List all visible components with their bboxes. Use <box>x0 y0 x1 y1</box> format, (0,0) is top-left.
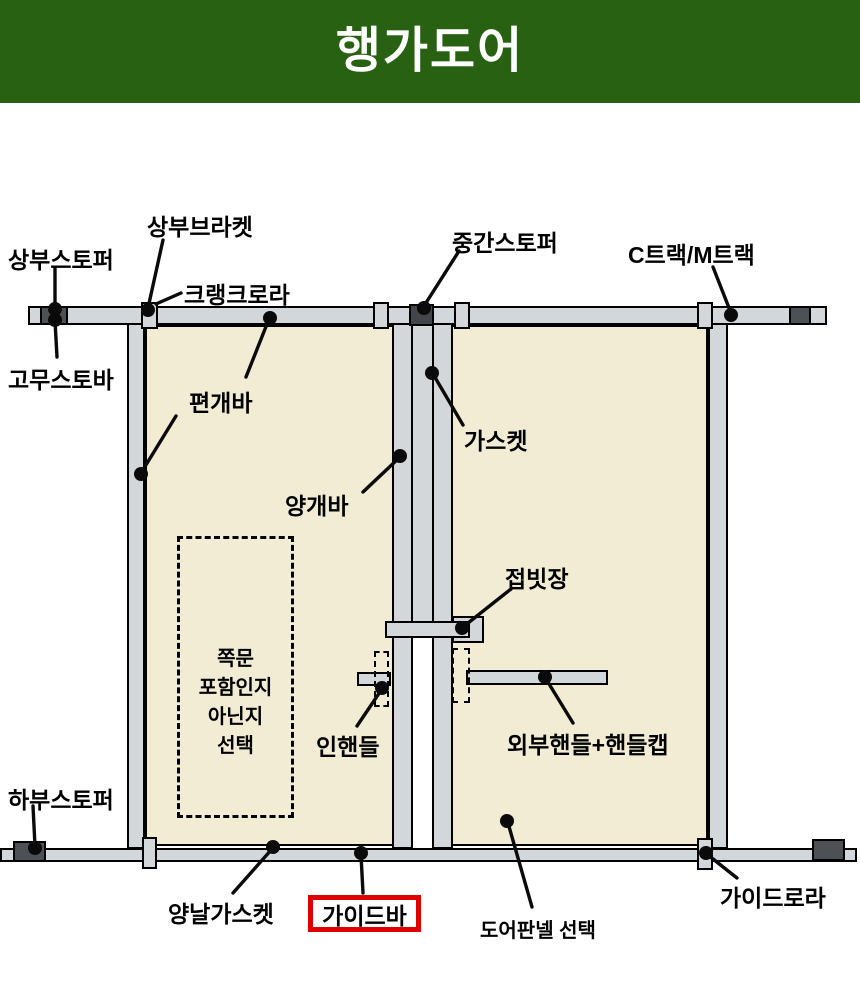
label-middle-stopper: 중간스토퍼 <box>452 224 558 258</box>
door-panel-right <box>450 325 708 846</box>
label-outer-handle: 외부핸들+핸들캡 <box>507 726 669 760</box>
label-guide-bar: 가이드바 <box>322 897 407 931</box>
page-title: 행가도어 <box>0 0 860 103</box>
leader-top-bracket <box>148 240 163 308</box>
label-double-edge-gasket: 양날가스켓 <box>168 895 274 929</box>
bottom-guide-bracket-left <box>142 837 157 869</box>
side-door-note-line: 포함인지 <box>177 674 294 703</box>
label-bottom-stopper: 하부스토퍼 <box>8 781 114 815</box>
top-left-stopper-block <box>40 306 68 325</box>
label-top-bracket: 상부브라켓 <box>147 208 253 242</box>
center-right-frame-bar <box>432 323 453 849</box>
left-frame-bar <box>127 323 145 849</box>
inner-handle-dashed-outline <box>374 651 389 707</box>
label-crank-roller: 크랭크로라 <box>184 276 290 310</box>
folding-latch-bar <box>385 621 470 638</box>
label-guide-roller: 가이드로라 <box>720 879 826 913</box>
label-folding-latch: 접빗장 <box>505 560 568 594</box>
bottom-right-stopper-block <box>812 839 845 861</box>
guide-roller-block <box>697 838 713 870</box>
side-door-note-line: 선택 <box>177 732 294 761</box>
hanger-door-diagram-page: 행가도어 쪽문 포함인지 아닌지 선택 <box>0 0 860 1000</box>
crank-roller-left <box>373 302 389 329</box>
middle-stopper-block <box>409 304 434 326</box>
label-rubber-stopper: 고무스토바 <box>8 361 114 395</box>
label-top-stopper: 상부스토퍼 <box>8 241 114 275</box>
outer-handle-bar <box>466 670 608 685</box>
label-door-panel-select: 도어판넬 선택 <box>480 914 596 943</box>
side-door-option-text: 쪽문 포함인지 아닌지 선택 <box>177 645 294 761</box>
label-gasket: 가스켓 <box>464 422 527 456</box>
crank-roller-far-right <box>697 302 713 329</box>
label-single-door-bar: 편개바 <box>189 384 252 418</box>
right-frame-bar <box>708 323 728 849</box>
label-double-door-bar: 양개바 <box>285 487 348 521</box>
guide-bar-highlight-box: 가이드바 <box>308 895 421 932</box>
outer-handle-dashed-outline <box>452 648 470 703</box>
top-right-stopper-block <box>789 306 811 325</box>
label-inner-handle: 인핸들 <box>316 728 379 762</box>
side-door-note-line: 쪽문 <box>177 645 294 674</box>
crank-roller-right <box>454 302 470 329</box>
bottom-guide-bar <box>0 848 857 862</box>
bottom-left-stopper-block <box>13 841 46 862</box>
page-header: 행가도어 <box>0 0 860 103</box>
leader-rubber-stopper <box>55 321 57 357</box>
leader-crank-roller <box>156 293 181 304</box>
center-left-frame-bar <box>392 323 413 849</box>
side-door-note-line: 아닌지 <box>177 703 294 732</box>
label-track: C트랙/M트랙 <box>628 236 755 270</box>
top-bracket-block <box>141 302 158 329</box>
leader-middle-stopper <box>424 251 459 306</box>
